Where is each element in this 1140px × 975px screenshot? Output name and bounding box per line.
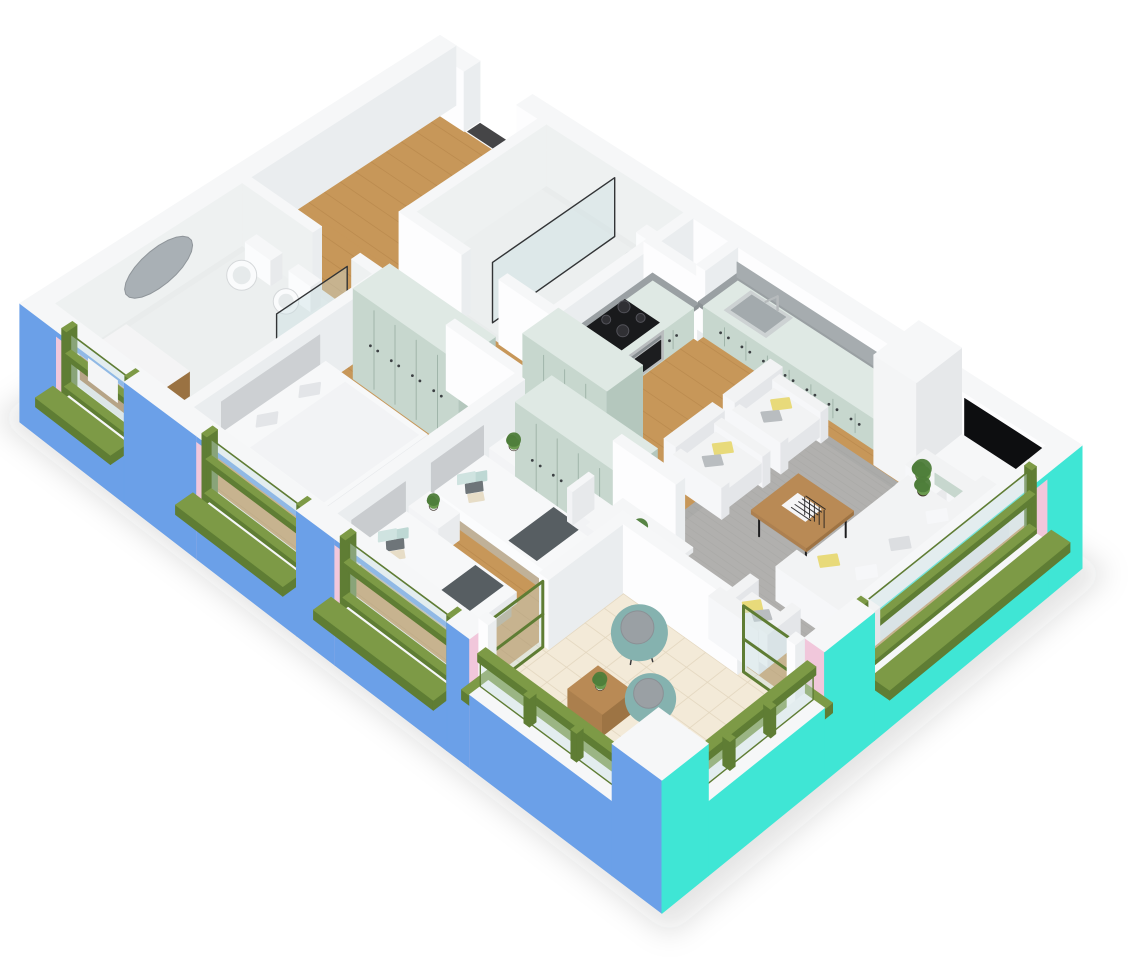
floor-plan-stage bbox=[0, 0, 1140, 975]
balcony-railing-se bbox=[764, 700, 776, 738]
toilet bbox=[227, 260, 257, 290]
balcony-railing-se bbox=[723, 732, 735, 770]
balcony-railing-sw bbox=[524, 690, 536, 728]
isometric-floor-plan bbox=[0, 0, 1140, 975]
corner-column-south bbox=[612, 708, 708, 914]
balcony-railing-sw bbox=[571, 724, 583, 762]
